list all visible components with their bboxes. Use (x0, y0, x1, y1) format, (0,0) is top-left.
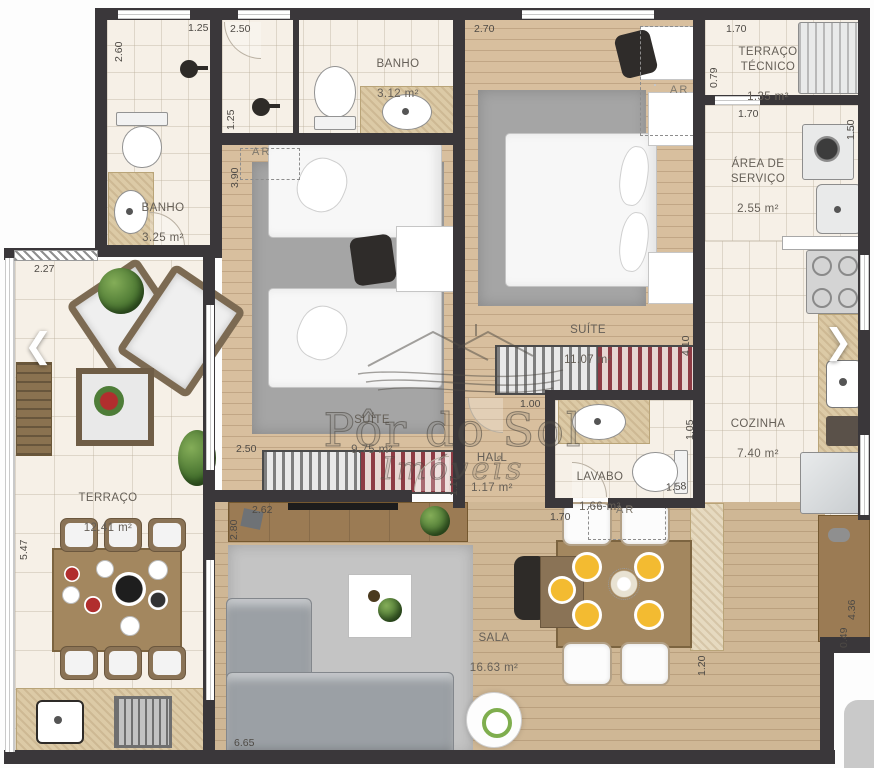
dimension-2-50-suite9: 2.50 (236, 443, 256, 455)
room-name: BANHO (142, 202, 185, 214)
bar-faucet-icon (828, 528, 850, 542)
wall-banho2-divider (293, 20, 299, 135)
room-area: 9.75 m² (351, 444, 393, 456)
kitchen-appliance (826, 416, 860, 446)
ac-label-suite11: AR (670, 84, 689, 96)
room-area: 16.63 m² (470, 662, 519, 674)
room-name: BANHO (377, 58, 420, 70)
room-area: 11.07 m² (564, 354, 612, 366)
tv-icon (288, 503, 398, 510)
plate-white-2-icon (96, 560, 114, 578)
room-area: 2.55 m² (737, 203, 779, 215)
dimension-1-50: 1.50 (845, 120, 857, 140)
dimension-1-70-tecnico: 1.70 (726, 23, 746, 35)
washer-drum-icon (814, 136, 840, 162)
plate-yellow-3-icon (572, 600, 602, 630)
wardrobe-suite9-left (264, 452, 361, 492)
kitchen-shelf (782, 236, 870, 250)
plate-white-3-icon (148, 560, 168, 580)
room-label-banho-2: BANHO 3.12 m² (348, 42, 448, 102)
terrace-plant-1 (98, 268, 144, 314)
dimension-0-49: 0.49 (838, 628, 850, 648)
side-table-ring-icon (482, 708, 512, 738)
plate-yellow-2-icon (634, 552, 664, 582)
room-label-banho-1: BANHO 3.25 m² (118, 186, 208, 246)
room-label-hall: HALL 1.17 m² (452, 436, 532, 496)
window-suite11-icon (522, 10, 654, 19)
shower-arm-banho2 (268, 104, 280, 108)
dimension-1-17: 1.17 (448, 476, 460, 496)
dimension-2-70: 2.70 (474, 23, 494, 35)
dimension-1-70-servico: 1.70 (738, 108, 758, 120)
flower-centerpiece-icon (94, 386, 124, 416)
burner-2-icon (838, 256, 858, 276)
dimension-1-20: 1.20 (696, 656, 708, 676)
plate-red-2-icon (64, 566, 80, 582)
shower-arm-banho1 (196, 66, 208, 70)
carousel-prev-icon[interactable]: ❮ (24, 326, 53, 366)
dimension-6-65: 6.65 (234, 737, 254, 749)
room-name: ÁREA DE SERVIÇO (731, 158, 785, 185)
room-area: 3.25 m² (142, 232, 184, 244)
ac-label-suite9: AR (252, 146, 271, 158)
faucet-lavabo-icon (594, 418, 601, 425)
railing-terraco (5, 258, 15, 752)
window-terraco-sala (206, 560, 214, 700)
dimension-1-25-banho2: 1.25 (225, 110, 237, 130)
room-area: 1.17 m² (471, 482, 513, 494)
wall-left-banho1 (95, 8, 107, 255)
terraco-chair-b3 (148, 646, 186, 680)
burner-4-icon (838, 288, 858, 308)
terraco-chair-b1 (60, 646, 98, 680)
nightstand-suite11-bottom (648, 252, 696, 304)
wall-terraco-bottom (4, 750, 215, 764)
background-shape (844, 700, 874, 768)
plate-black-icon (112, 572, 146, 606)
terrace-bench (16, 362, 52, 456)
dimension-1-00: 1.00 (520, 398, 540, 410)
room-name: SUÍTE (570, 324, 606, 336)
floor-plan: BANHO 3.25 m² BANHO 3.12 m² TERRAÇO TÉCN… (0, 0, 874, 768)
window-cozinha-icon (860, 255, 869, 330)
dimension-1-70-dining: 1.70 (550, 511, 570, 523)
window-banho1-icon (118, 10, 190, 19)
window-cozinha2-icon (860, 435, 869, 515)
room-name: COZINHA (731, 418, 786, 430)
ac-zone-suite11 (640, 26, 698, 136)
window-banho2-icon (238, 10, 290, 19)
kitchen-faucet-icon (839, 378, 847, 386)
carousel-next-icon[interactable]: ❯ (824, 322, 853, 362)
dimension-2-50-top: 2.50 (230, 23, 250, 35)
sofa-main (226, 672, 454, 758)
room-name: TERRAÇO (78, 492, 137, 504)
barbecue-grill (114, 696, 172, 748)
dimension-4-36: 4.36 (846, 600, 858, 620)
wall-suite9-bottom (212, 490, 412, 502)
table-bowl-icon (368, 590, 380, 602)
wall-sala-right (820, 650, 834, 762)
room-label-sala: SALA 16.63 m² (452, 616, 536, 676)
toilet-tank-banho1 (116, 112, 168, 126)
room-area: 1.35 m² (747, 91, 789, 103)
room-area: 7.40 m² (737, 448, 779, 460)
wall-suite11-right (693, 8, 705, 398)
bed-suite9-2 (268, 288, 442, 388)
tank-drain-icon (834, 206, 841, 213)
terraco-chair-b2 (104, 646, 142, 680)
dining-chair-b2 (620, 642, 670, 686)
burner-1-icon (812, 256, 832, 276)
dimension-1-58: 1.58 (666, 480, 687, 493)
room-name: HALL (477, 452, 507, 464)
wall-lavabo-left (545, 390, 555, 508)
dimension-2-80: 2.80 (228, 520, 240, 540)
wall-sala-bottom (210, 750, 835, 764)
room-name: SUÍTE (354, 414, 390, 426)
desk-chair-suite9 (349, 233, 397, 286)
dimension-2-62: 2.62 (252, 504, 272, 516)
wall-lavabo-top (545, 390, 703, 400)
dimension-0-79: 0.79 (708, 68, 720, 88)
plate-yellow-5-icon (548, 576, 576, 604)
room-label-area-servico: ÁREA DE SERVIÇO 2.55 m² (708, 142, 808, 217)
room-area: 3.12 m² (377, 88, 419, 100)
table-plant (378, 598, 402, 622)
room-area: 12.41 m² (84, 522, 133, 534)
room-name: TERRAÇO TÉCNICO (738, 46, 797, 73)
dining-chair-b1 (562, 642, 612, 686)
plate-red-1-icon (84, 596, 102, 614)
room-label-terraco: TERRAÇO 12.41 m² (58, 476, 158, 536)
plate-dark-2-icon (148, 590, 168, 610)
room-label-terraco-tecnico: TERRAÇO TÉCNICO 1.35 m² (712, 30, 824, 105)
dimension-2-60: 2.60 (113, 42, 125, 62)
room-label-suite-9: SUÍTE 9.75 m² (322, 398, 422, 458)
wall-lavabo-right (693, 398, 705, 508)
dimension-1-25-top: 1.25 (188, 22, 208, 34)
dimension-3-90: 3.90 (229, 168, 241, 188)
wall-central-vertical (453, 8, 465, 508)
dimension-4-10: 4.10 (680, 336, 692, 356)
desk-suite9 (396, 226, 456, 292)
faucet-banho2-icon (402, 108, 409, 115)
ac-label-dining: AR (616, 504, 635, 516)
terraco-faucet-icon (54, 716, 62, 724)
wall-banho1-right (210, 8, 222, 258)
dimension-1-05: 1.05 (684, 420, 696, 440)
toilet-tank-banho2 (314, 116, 356, 130)
burner-3-icon (812, 288, 832, 308)
room-name: LAVABO (577, 471, 624, 483)
console-plant (420, 506, 450, 536)
counter-divider (690, 503, 724, 651)
dimension-5-47: 5.47 (18, 540, 30, 560)
wall-banho2-bottom (222, 133, 455, 145)
dimension-2-27: 2.27 (34, 263, 54, 275)
plate-yellow-4-icon (634, 600, 664, 630)
plate-yellow-1-icon (572, 552, 602, 582)
hatch-terraco-top (14, 250, 98, 261)
plate-white-1-icon (62, 586, 80, 604)
room-area: 1.66 m² (579, 501, 621, 513)
room-name: SALA (478, 632, 509, 644)
room-label-suite-11: SUÍTE 11.07 m² (538, 308, 638, 368)
toilet-banho1 (122, 126, 162, 168)
window-terraco-suite (206, 305, 214, 470)
plate-white-4-icon (120, 616, 140, 636)
room-label-cozinha: COZINHA 7.40 m² (706, 402, 810, 462)
